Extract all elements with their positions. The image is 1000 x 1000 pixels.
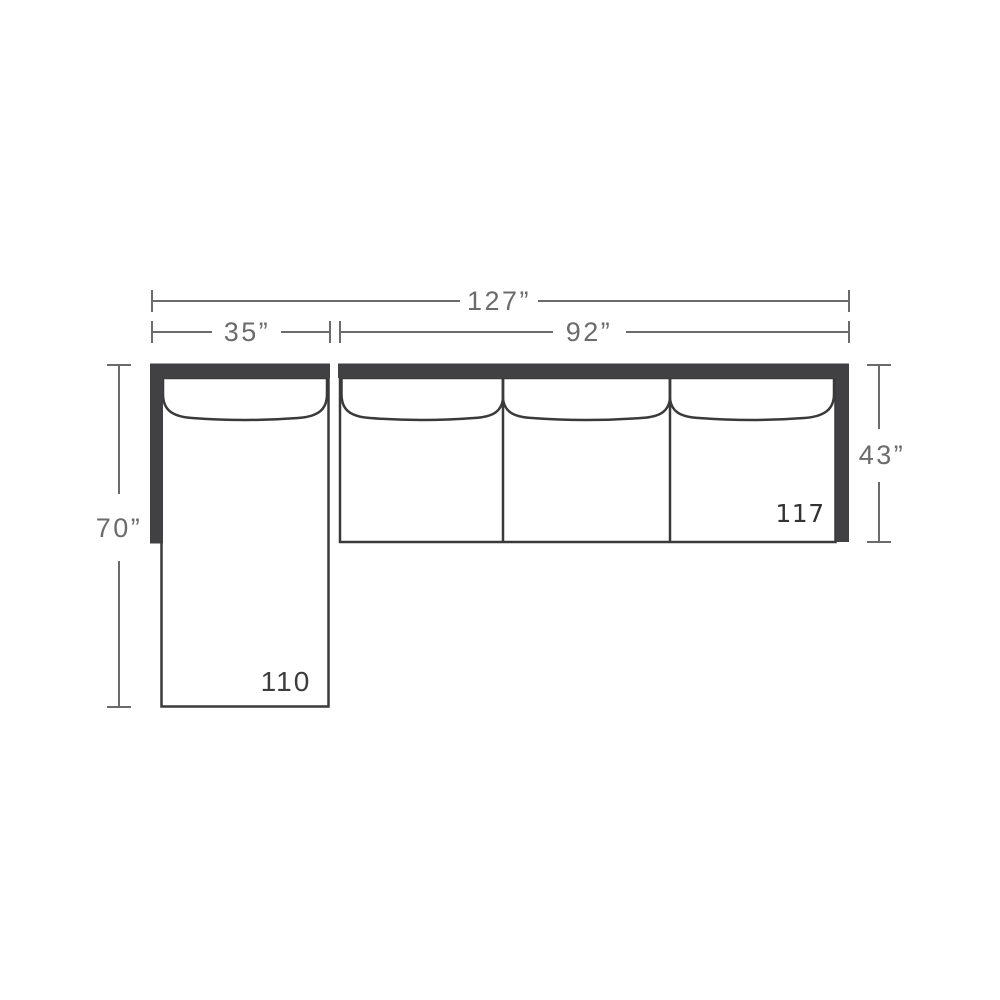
dimension-sofa-depth: 43”	[859, 365, 906, 542]
sectional-sofa-dimension-diagram: 127” 35” 92” 70”	[0, 0, 1000, 1000]
sofa-back-cushion-middle	[503, 378, 670, 420]
diagram-canvas: 127” 35” 92” 70”	[0, 0, 1000, 1000]
dimension-chaise-width: 35”	[152, 317, 330, 347]
chaise-back-frame	[150, 364, 330, 379]
dimension-chaise-depth: 70”	[96, 365, 143, 707]
chaise-back-cushion	[163, 378, 327, 420]
total-width-label: 127”	[467, 286, 531, 316]
sofa-piece-number: 117	[775, 499, 824, 528]
chaise-section: 110	[150, 364, 330, 707]
sofa-width-label: 92”	[566, 317, 613, 347]
chaise-left-arm	[150, 364, 163, 544]
chaise-width-label: 35”	[224, 317, 271, 347]
sofa-right-arm	[836, 364, 849, 543]
sofa-back-cushion-left	[342, 378, 504, 420]
sofa-back-cushion-right	[670, 378, 834, 420]
sofa-section: 117	[338, 364, 849, 543]
sofa-back-frame	[338, 364, 849, 379]
chaise-piece-number: 110	[261, 666, 312, 697]
dimension-sofa-width: 92”	[340, 317, 849, 347]
chaise-body	[162, 377, 329, 707]
dimension-total-width: 127”	[152, 286, 849, 316]
sofa-depth-label: 43”	[859, 440, 906, 470]
chaise-depth-label: 70”	[96, 513, 143, 543]
